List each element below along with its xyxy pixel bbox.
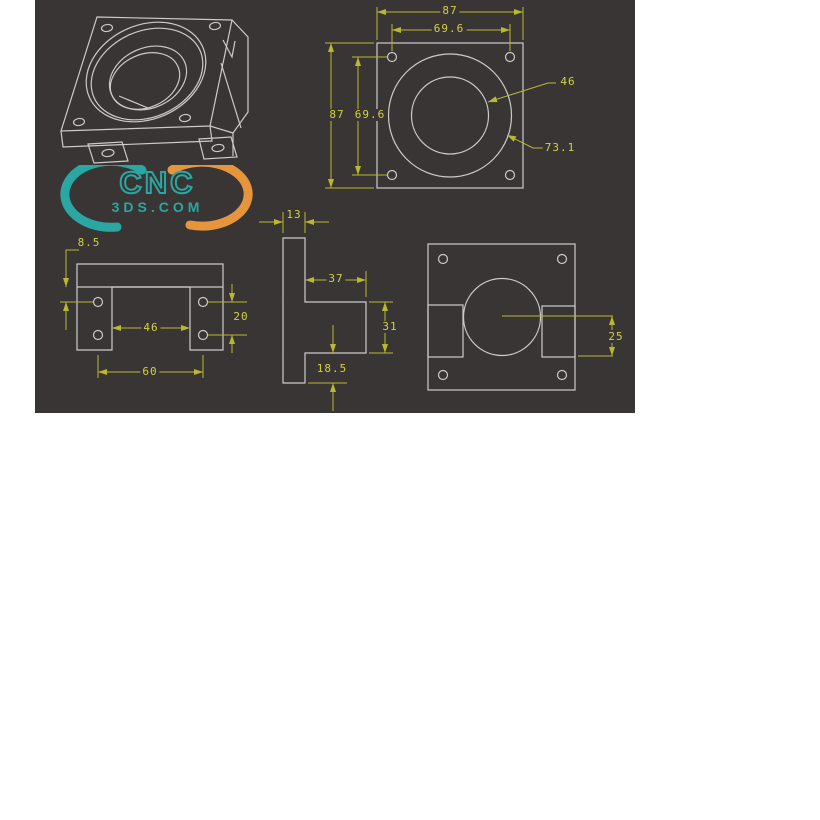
dim-side-base-offset: 18.5 [315, 363, 350, 375]
dim-bottom-hole-span-h: 60 [140, 366, 159, 378]
side-view-dimensions [259, 212, 393, 411]
back-view [428, 244, 575, 390]
back-view-dimensions [502, 316, 613, 356]
logo-brand-text: CNC [60, 167, 255, 199]
dim-side-step-height: 31 [380, 321, 399, 333]
dim-bottom-slot-width: 46 [141, 322, 160, 334]
dim-front-hole-span-h: 69.6 [432, 23, 467, 35]
dim-front-hole-span-v: 69.6 [353, 109, 388, 121]
dim-front-height: 87 [327, 109, 346, 121]
dim-bottom-hole-span-v: 20 [231, 311, 250, 323]
dim-bottom-flange-offset: 8.5 [76, 237, 103, 249]
dim-back-center-to-notch: 25 [606, 331, 625, 343]
page: { "colors": { "background": "#3a3535", "… [0, 0, 820, 820]
cnc3ds-logo: CNC 3DS.COM [60, 165, 255, 233]
dim-side-step-depth: 37 [326, 273, 345, 285]
logo-domain-text: 3DS.COM [60, 199, 255, 215]
cad-drawing-canvas: 87 69.6 87 69.6 46 73.1 8.5 20 46 60 13 … [35, 0, 635, 413]
isometric-view [61, 4, 248, 163]
dim-side-wall-thickness: 13 [284, 209, 303, 221]
dim-front-bore: 46 [558, 76, 577, 88]
bottom-view [77, 264, 223, 350]
dim-front-width: 87 [440, 5, 459, 17]
front-view [377, 43, 523, 188]
bottom-view-dimensions [60, 250, 247, 378]
dim-front-boss: 73.1 [543, 142, 578, 154]
